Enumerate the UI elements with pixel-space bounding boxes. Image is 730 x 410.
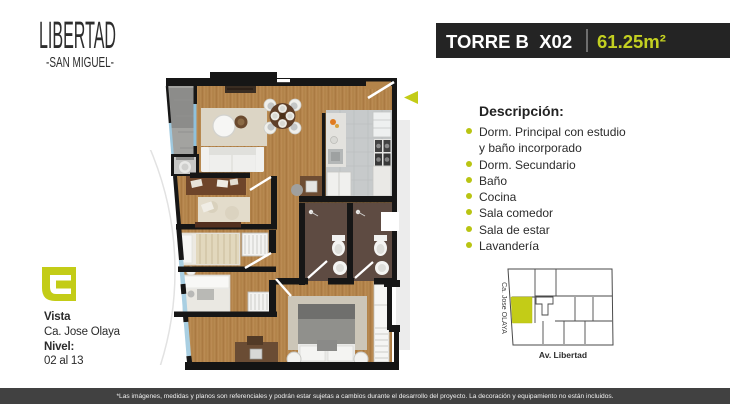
svg-text:Ca. Jose OLAYA: Ca. Jose OLAYA xyxy=(500,282,507,334)
svg-text:LIBERTAD: LIBERTAD xyxy=(39,15,116,57)
svg-text:-SAN MIGUEL-: -SAN MIGUEL- xyxy=(46,55,114,71)
svg-text:Av. Libertad: Av. Libertad xyxy=(539,350,587,360)
